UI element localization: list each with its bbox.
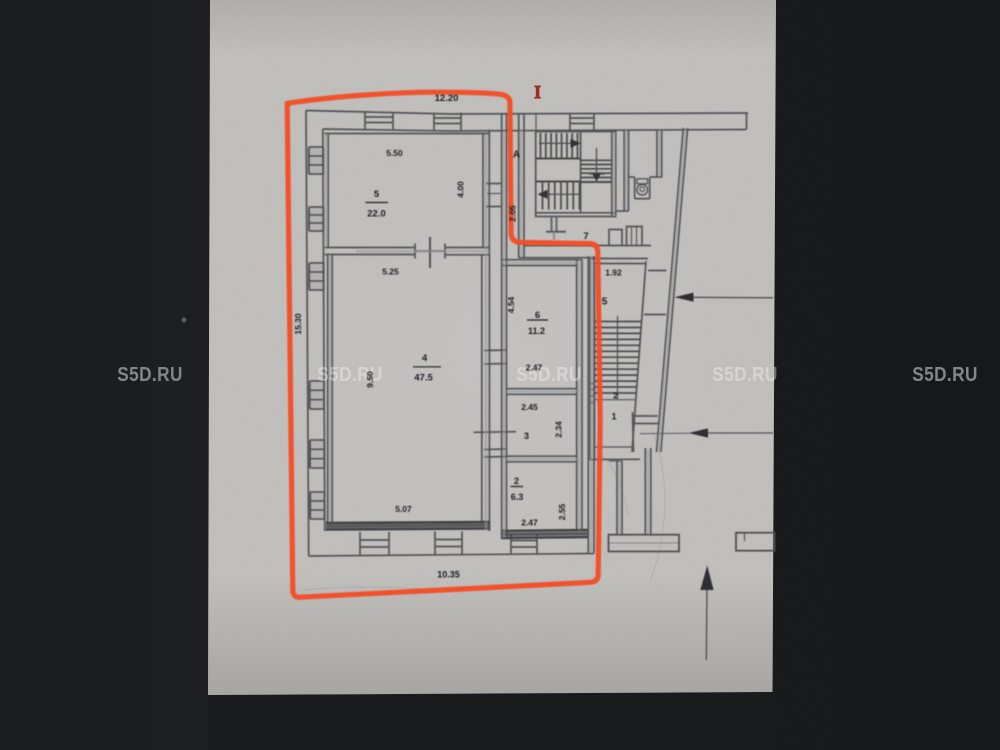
svg-text:S5D.RU: S5D.RU — [912, 363, 978, 386]
svg-text:S5D.RU: S5D.RU — [117, 363, 183, 386]
